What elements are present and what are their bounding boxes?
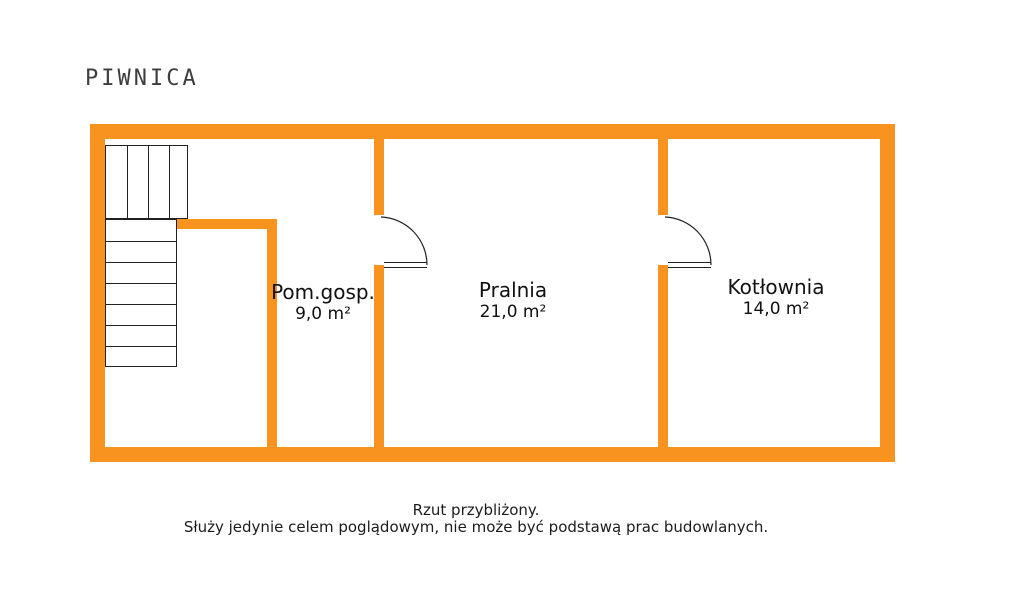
floor-plan-page: PIWNICA: [0, 0, 1024, 598]
door-arc-pralnia: [381, 217, 427, 265]
disclaimer: Rzut przybliżony. Służy jedynie celem po…: [184, 502, 768, 536]
room-name: Kotłownia: [728, 276, 825, 298]
room-label-pom-gosp: Pom.gosp. 9,0 m²: [271, 281, 375, 324]
page-title: PIWNICA: [85, 66, 199, 91]
room-area: 14,0 m²: [728, 300, 825, 319]
floor-plan: Pom.gosp. 9,0 m² Pralnia 21,0 m² Kotłown…: [90, 124, 895, 462]
room-label-kotlownia: Kotłownia 14,0 m²: [728, 276, 825, 319]
room-label-pralnia: Pralnia 21,0 m²: [479, 279, 547, 322]
disclaimer-line1: Rzut przybliżony.: [184, 502, 768, 519]
door-arc-kotlownia: [665, 217, 711, 265]
room-name: Pralnia: [479, 279, 547, 301]
room-area: 21,0 m²: [479, 303, 547, 322]
room-name: Pom.gosp.: [271, 281, 375, 303]
disclaimer-line2: Służy jedynie celem poglądowym, nie może…: [184, 519, 768, 536]
room-area: 9,0 m²: [271, 305, 375, 324]
